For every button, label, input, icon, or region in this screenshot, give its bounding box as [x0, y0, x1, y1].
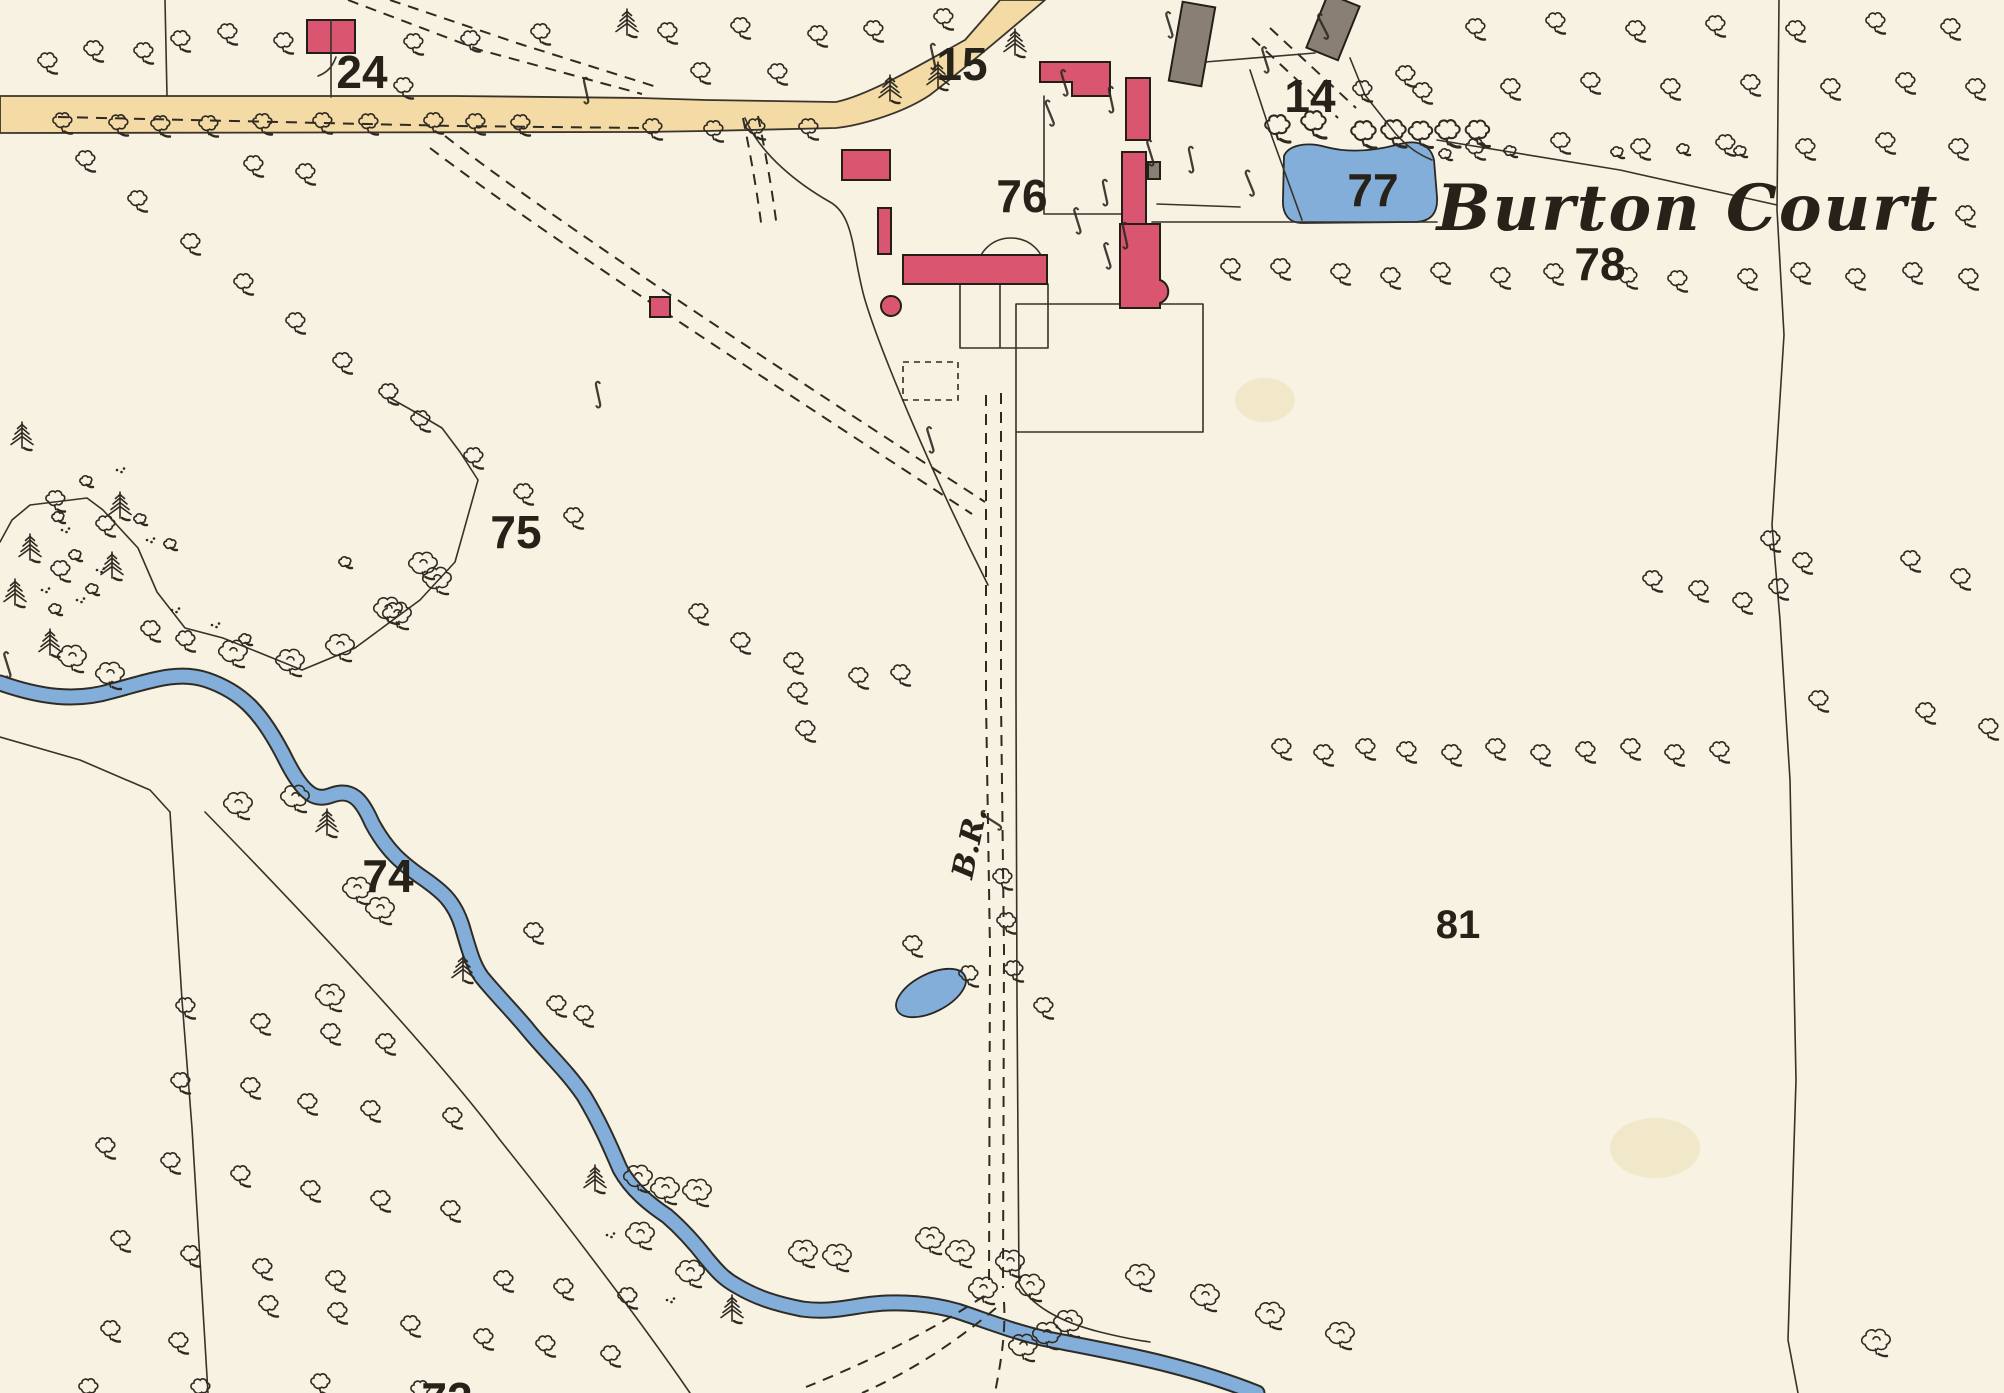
- burton-court-south-range: [903, 255, 1047, 284]
- parcel-number-78: 78: [1574, 238, 1625, 290]
- burton-court-west-strip: [878, 208, 891, 254]
- parcel-number-77: 77: [1347, 164, 1398, 216]
- parcel-number-76: 76: [996, 170, 1047, 222]
- historic-os-map: ∫∫∫∫∫∫∫∫∫∫∫∫∫∫∫∫∫∫∫ Burton Court 24 15 1…: [0, 0, 2004, 1393]
- parcel-number-81: 81: [1436, 903, 1481, 947]
- well-icon: [881, 296, 901, 316]
- map-canvas: ∫∫∫∫∫∫∫∫∫∫∫∫∫∫∫∫∫∫∫ Burton Court 24 15 1…: [0, 0, 2004, 1393]
- burton-court-east-wing: [1122, 152, 1146, 224]
- parcel-number-74: 74: [362, 850, 414, 902]
- burton-court-ne-wing: [1126, 78, 1150, 140]
- place-name-title: Burton Court: [1435, 171, 1940, 246]
- burton-court-west-block: [842, 150, 890, 180]
- parcel-number-75: 75: [490, 506, 541, 558]
- paper-stain: [1610, 1118, 1700, 1178]
- parcel-number-15: 15: [936, 38, 987, 90]
- parcel-number-24: 24: [336, 46, 388, 98]
- parcel-number-72: 72: [421, 1373, 472, 1393]
- paper-stain: [1235, 378, 1295, 422]
- outbuilding-west: [650, 297, 670, 317]
- parcel-number-14: 14: [1284, 70, 1336, 122]
